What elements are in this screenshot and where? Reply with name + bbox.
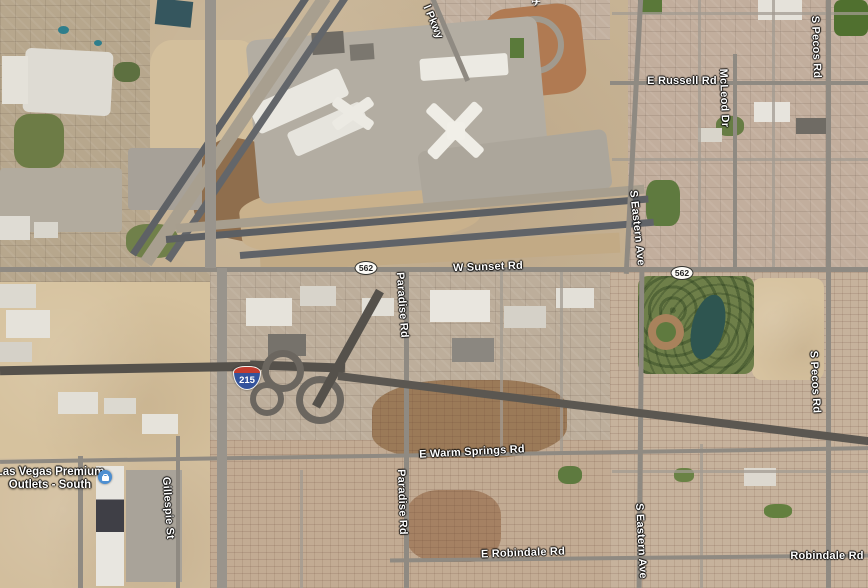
building-ws-2 bbox=[104, 398, 136, 414]
road-label-sunset: W Sunset Rd bbox=[453, 260, 523, 274]
building-tr-3 bbox=[698, 128, 722, 142]
building-resort-west bbox=[2, 56, 28, 104]
shopping-bag-body bbox=[102, 476, 109, 481]
greenspace-b1 bbox=[558, 466, 582, 484]
building-industrial-1 bbox=[0, 216, 30, 240]
building-industrial-2 bbox=[34, 222, 58, 238]
greenspace-field bbox=[510, 38, 524, 58]
road-mcleod bbox=[733, 54, 737, 268]
building-mid-5 bbox=[504, 306, 546, 328]
pool-2 bbox=[94, 40, 102, 46]
road-label-robindale-right: Robindale Rd bbox=[790, 550, 863, 562]
building-mid-dark-2 bbox=[452, 338, 494, 362]
road-label-russell: E Russell Rd bbox=[647, 75, 717, 87]
poi-premium-outlets-label[interactable]: Las Vegas Premium Outlets - South bbox=[0, 466, 104, 492]
building-mid-2 bbox=[300, 286, 336, 306]
pool-1 bbox=[58, 26, 69, 34]
building-tr-2 bbox=[796, 118, 826, 134]
road-minor-3 bbox=[698, 0, 701, 268]
road-label-pecos-top: S Pecos Rd bbox=[809, 16, 823, 79]
satellite-map-canvas[interactable]: l Pkwy E Russell Rd McLeod Dr S Pecos Rd… bbox=[0, 0, 868, 588]
road-las-vegas-blvd-south bbox=[217, 268, 227, 588]
ballfield-infield bbox=[656, 322, 676, 342]
road-minor-6 bbox=[560, 272, 563, 454]
road-minor-5 bbox=[500, 272, 503, 454]
road-label-paradise-lower: Paradise Rd bbox=[395, 469, 409, 535]
building-mid-4 bbox=[430, 290, 490, 322]
route-shield-562-west: 562 bbox=[355, 261, 378, 275]
road-pecos bbox=[826, 0, 831, 588]
greenspace-small bbox=[114, 62, 140, 82]
building-mid-1 bbox=[246, 298, 292, 326]
route-shield-562-east-number: 562 bbox=[675, 268, 689, 279]
greenspace-resort bbox=[14, 114, 64, 168]
building-wl-2 bbox=[6, 310, 50, 338]
road-sunset bbox=[0, 267, 868, 272]
parking-garage-2 bbox=[349, 43, 374, 61]
road-label-mcleod: McLeod Dr bbox=[717, 68, 731, 127]
route-shield-562-west-number: 562 bbox=[359, 263, 373, 274]
building-tr-corner bbox=[758, 0, 802, 20]
building-teal-tower bbox=[155, 0, 194, 28]
building-ws-3 bbox=[142, 414, 178, 434]
greenspace-tr-corner bbox=[834, 0, 868, 36]
road-minor-4 bbox=[772, 0, 775, 268]
road-gillespie bbox=[176, 436, 180, 588]
building-wl-3 bbox=[0, 342, 32, 362]
building-resort-complex bbox=[22, 48, 113, 117]
shopping-bag-icon[interactable] bbox=[98, 470, 112, 484]
road-minor-9 bbox=[300, 470, 303, 588]
building-ws-1 bbox=[58, 392, 98, 414]
greenspace-b2 bbox=[764, 504, 792, 518]
airplane-icon: ✈ bbox=[531, 0, 541, 9]
road-minor-8 bbox=[700, 444, 703, 588]
road-las-vegas-blvd-north bbox=[205, 0, 216, 268]
route-shield-562-east: 562 bbox=[671, 266, 694, 280]
poi-outlets-line1: Las Vegas Premium bbox=[0, 466, 104, 479]
poi-outlets-line2: Outlets - South bbox=[0, 479, 104, 492]
interstate-shield-number: 215 bbox=[233, 375, 261, 386]
concourse-d-core bbox=[447, 122, 465, 140]
interstate-shield-215: 215 bbox=[233, 366, 261, 390]
building-wl-1 bbox=[0, 284, 36, 308]
